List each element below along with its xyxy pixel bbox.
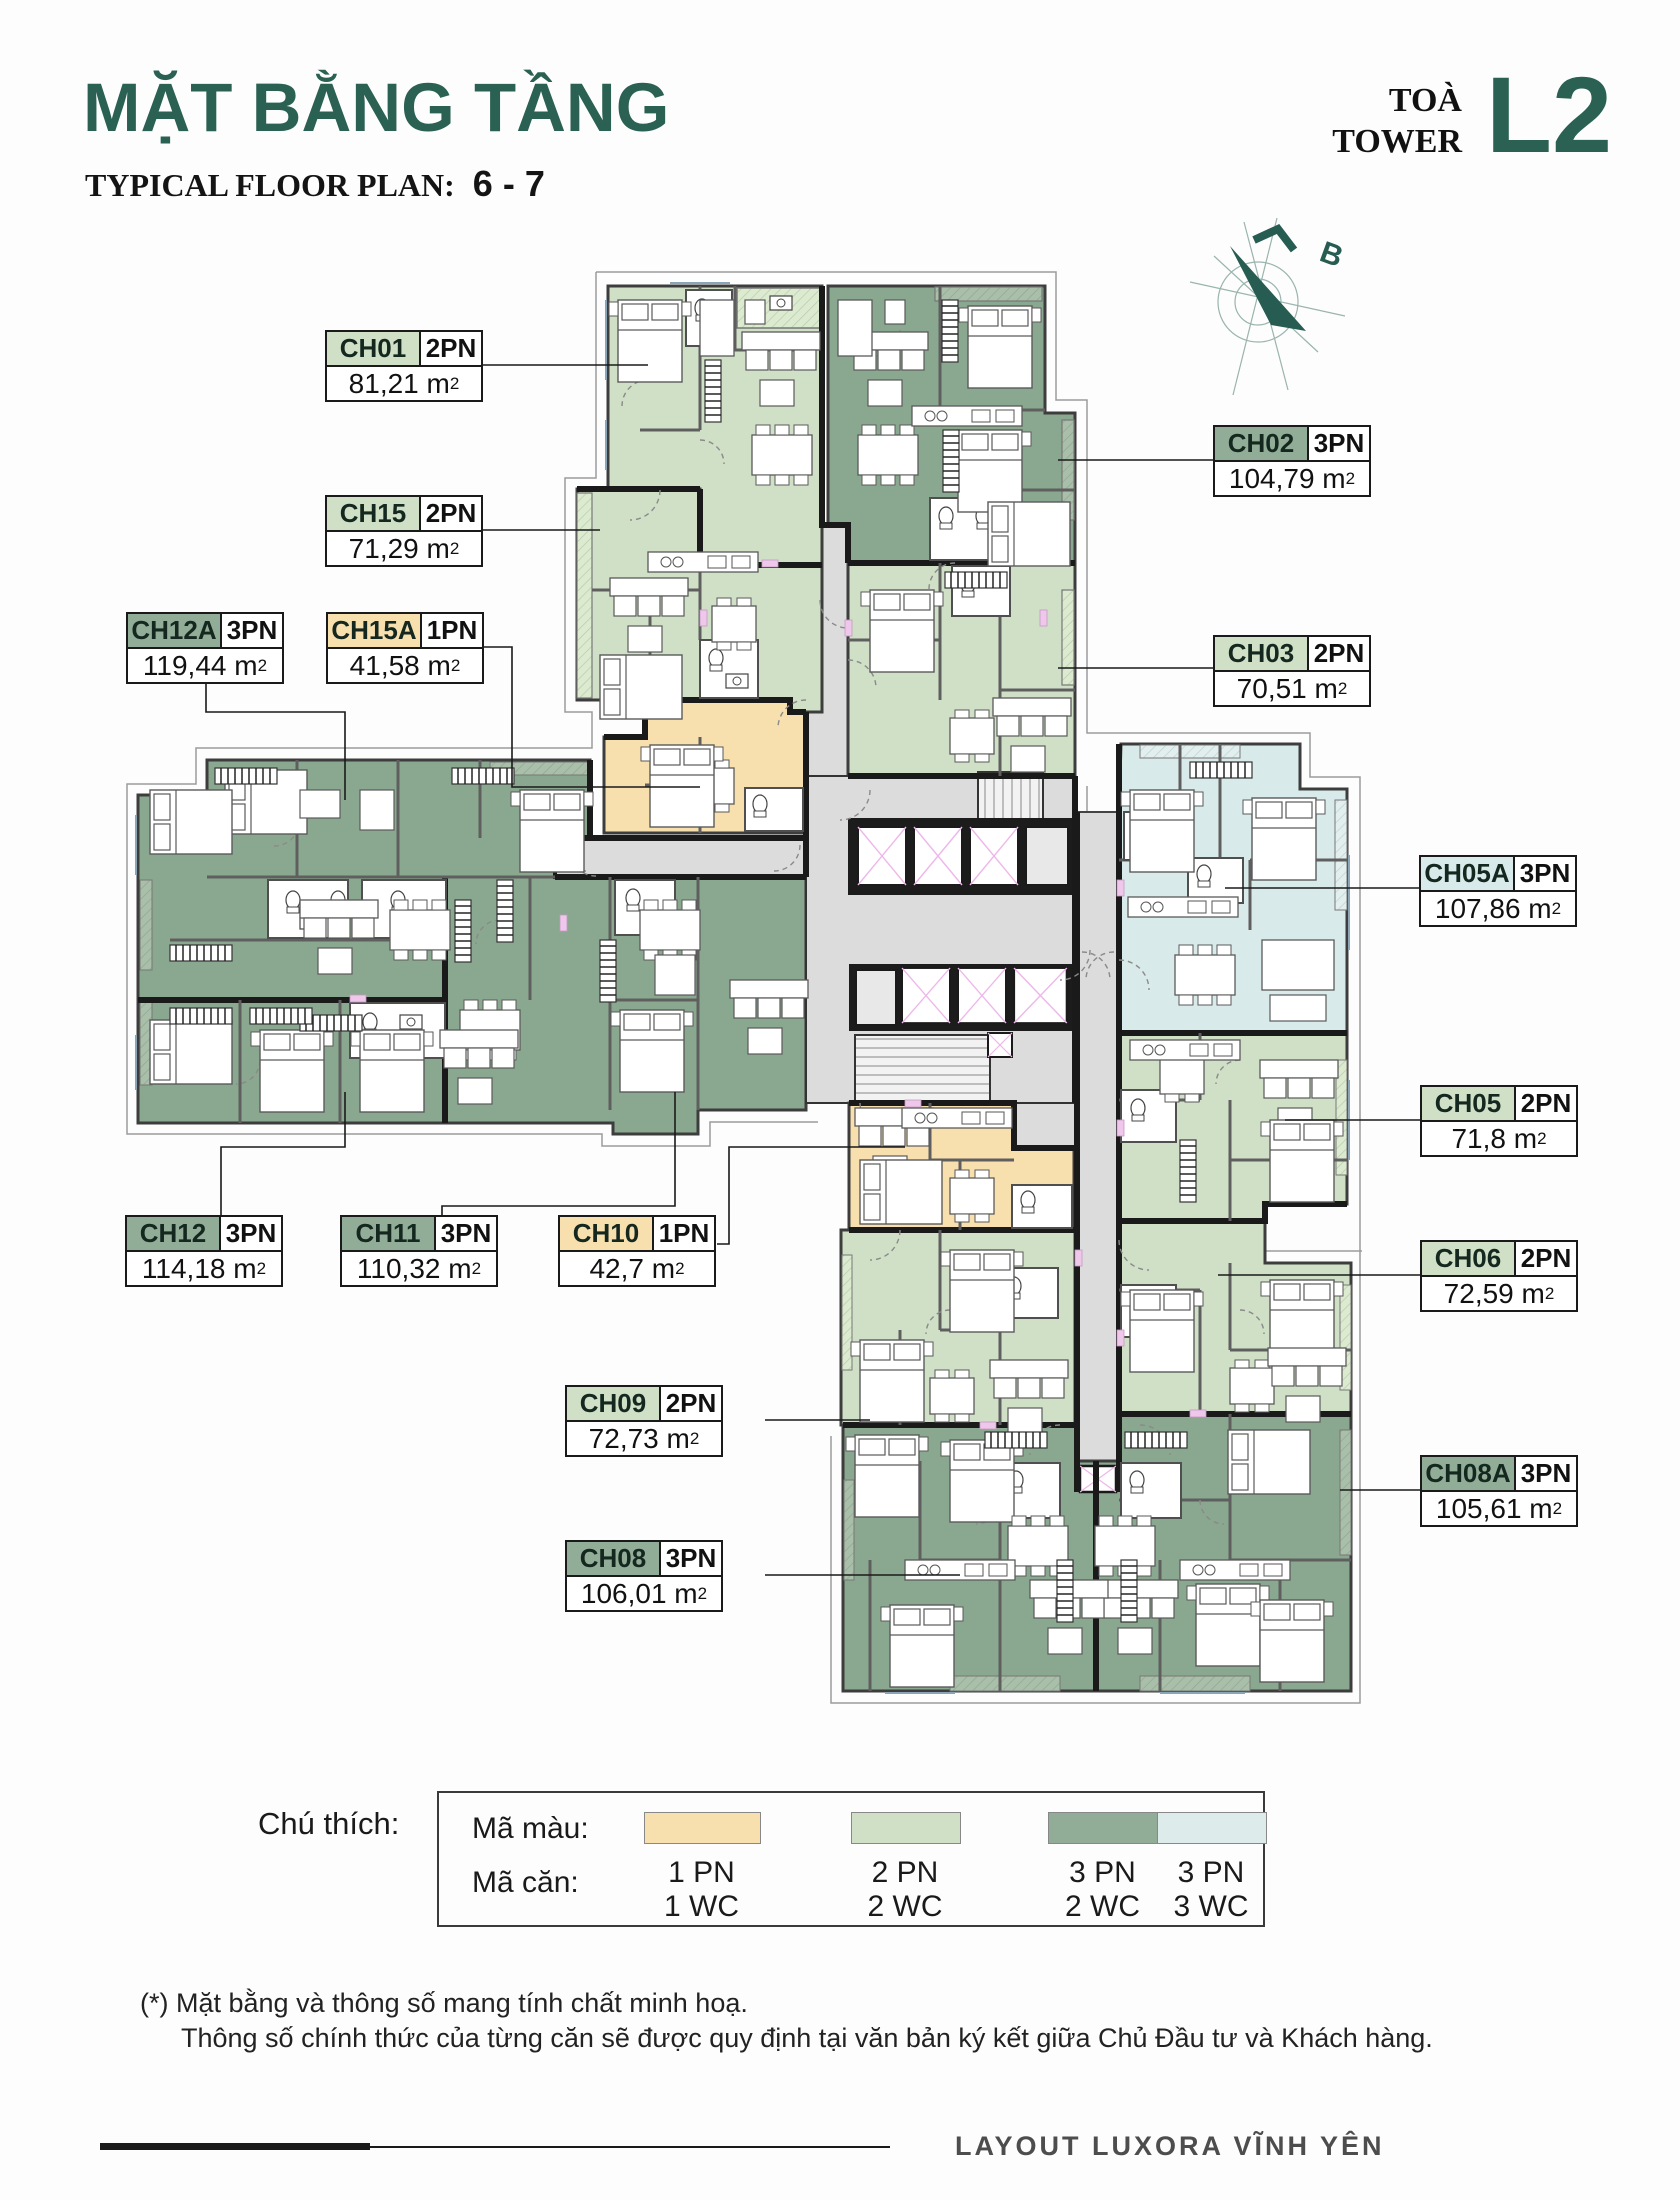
- svg-text:B: B: [1316, 236, 1348, 274]
